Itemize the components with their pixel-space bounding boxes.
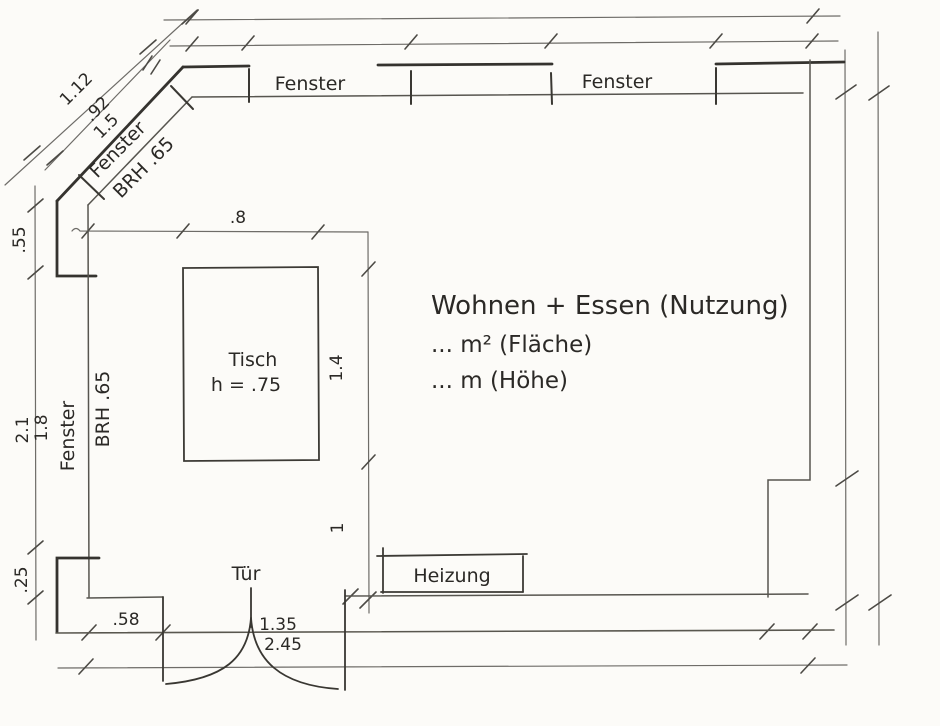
dim-line-table-depth	[368, 232, 369, 613]
dim-label-table-width: .8	[230, 208, 246, 228]
plan-labels: 1.12 .92 1.5 Fenster BRH .65 Fenster Fen…	[10, 69, 789, 655]
door-label: Tür	[231, 563, 261, 585]
top-window-left-label: Fenster	[275, 73, 346, 95]
table-label: Tisch	[228, 349, 278, 371]
left-window-sill-label: BRH .65	[92, 371, 114, 448]
bottom-wall-exterior-line	[56, 630, 834, 633]
left-wall-lower-exterior	[57, 558, 99, 632]
bottom-wall-interior-right	[345, 594, 808, 596]
dim-line-right-inner	[845, 50, 846, 645]
heater-top-line	[377, 554, 527, 556]
left-wall-upper-exterior	[57, 201, 96, 276]
door-height-label: 2.45	[264, 635, 302, 655]
right-wall-interior-step	[768, 60, 810, 597]
heater-label: Heizung	[413, 565, 490, 587]
room-height-text: ... m (Höhe)	[431, 368, 568, 394]
door-swing-arc-left	[166, 618, 251, 684]
dim-label-left-wall: 2.1	[13, 416, 33, 443]
double-door	[163, 588, 345, 690]
dim-label-left-bottom: .25	[12, 566, 32, 593]
top-wall-segment-middle	[378, 64, 552, 65]
dim-line-right-outer	[878, 32, 879, 645]
dim-label-bottom-left: .58	[112, 610, 139, 630]
room-area-text: ... m² (Fläche)	[431, 332, 592, 358]
bottom-wall-interior-left	[87, 597, 163, 598]
dim-line-table-width	[72, 229, 368, 233]
dim-label-left-window: 1.8	[32, 414, 52, 441]
dim-label-clearance: 1	[328, 523, 348, 534]
left-wall-interior-line	[88, 205, 89, 597]
top-wall-segment-right	[716, 62, 844, 64]
left-window-label: Fenster	[57, 401, 79, 472]
dim-line-top-inner	[170, 41, 838, 46]
dim-line-bottom	[58, 665, 847, 668]
dim-label-left-top: .55	[10, 226, 30, 253]
table-height-note: h = .75	[211, 374, 281, 396]
room-usage-text: Wohnen + Essen (Nutzung)	[431, 291, 789, 321]
window-jamb	[551, 73, 552, 104]
dim-line-left	[35, 186, 36, 640]
door-width-label: 1.35	[259, 615, 297, 635]
top-window-right-label: Fenster	[582, 71, 653, 93]
floor-plan-drawing: 1.12 .92 1.5 Fenster BRH .65 Fenster Fen…	[0, 0, 940, 726]
dim-label-table-depth: 1.4	[327, 354, 347, 381]
floor-plan-sheet: 1.12 .92 1.5 Fenster BRH .65 Fenster Fen…	[0, 0, 940, 726]
top-wall-segment-left	[183, 66, 249, 67]
diagonal-window-jamb	[171, 86, 193, 109]
dim-line-top-outer	[164, 16, 840, 20]
